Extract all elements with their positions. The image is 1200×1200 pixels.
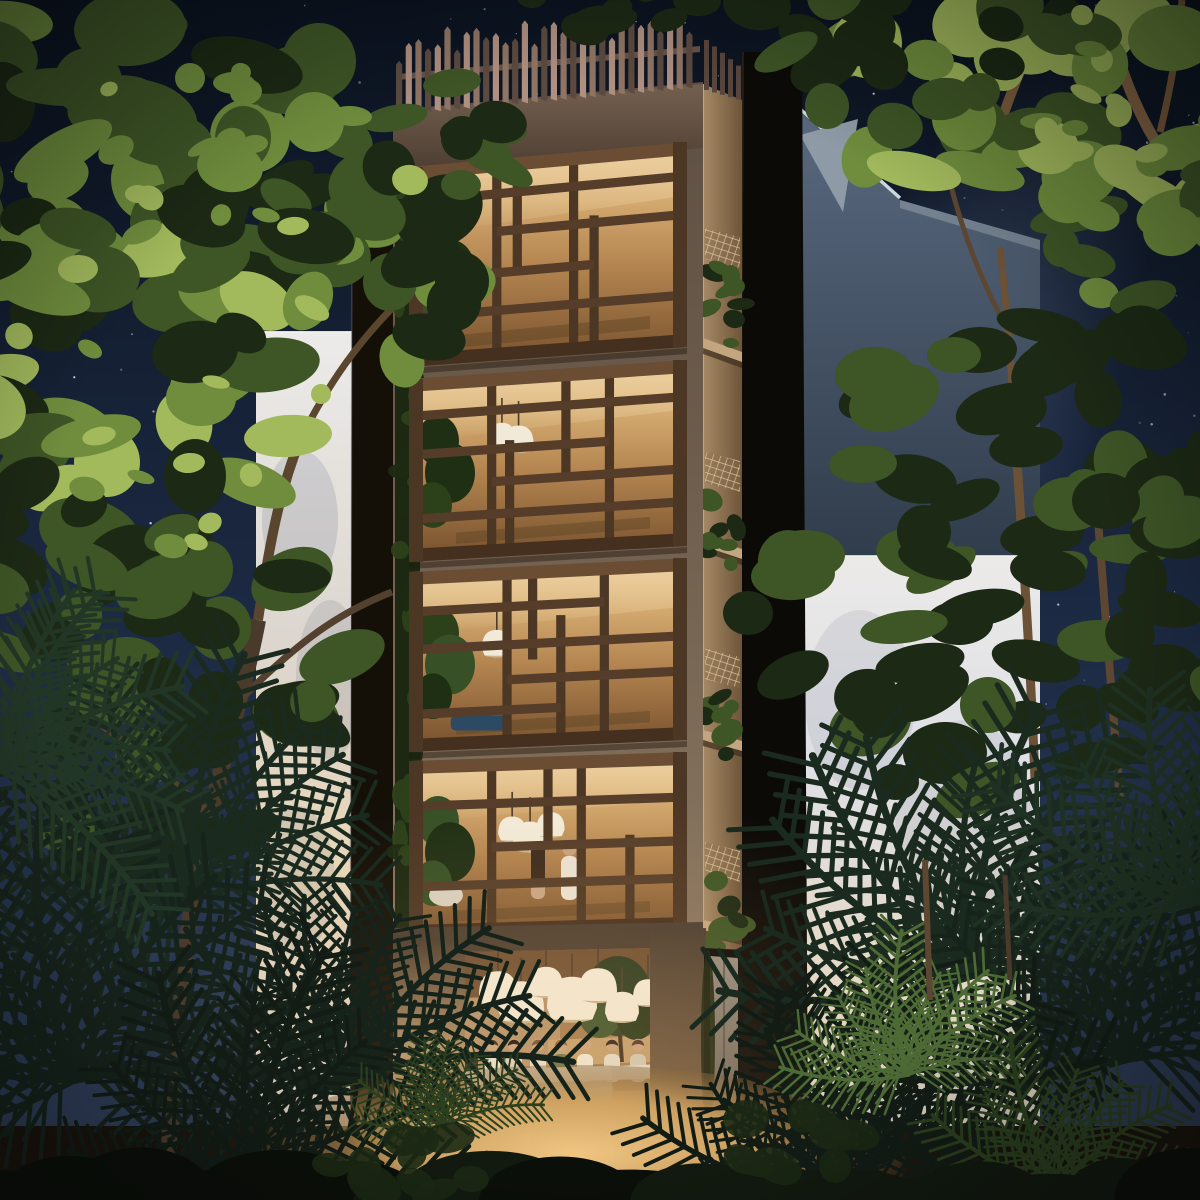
night-jungle-tower-render [0,0,1200,1200]
vignette [0,0,1200,1200]
render-canvas [0,0,1200,1200]
